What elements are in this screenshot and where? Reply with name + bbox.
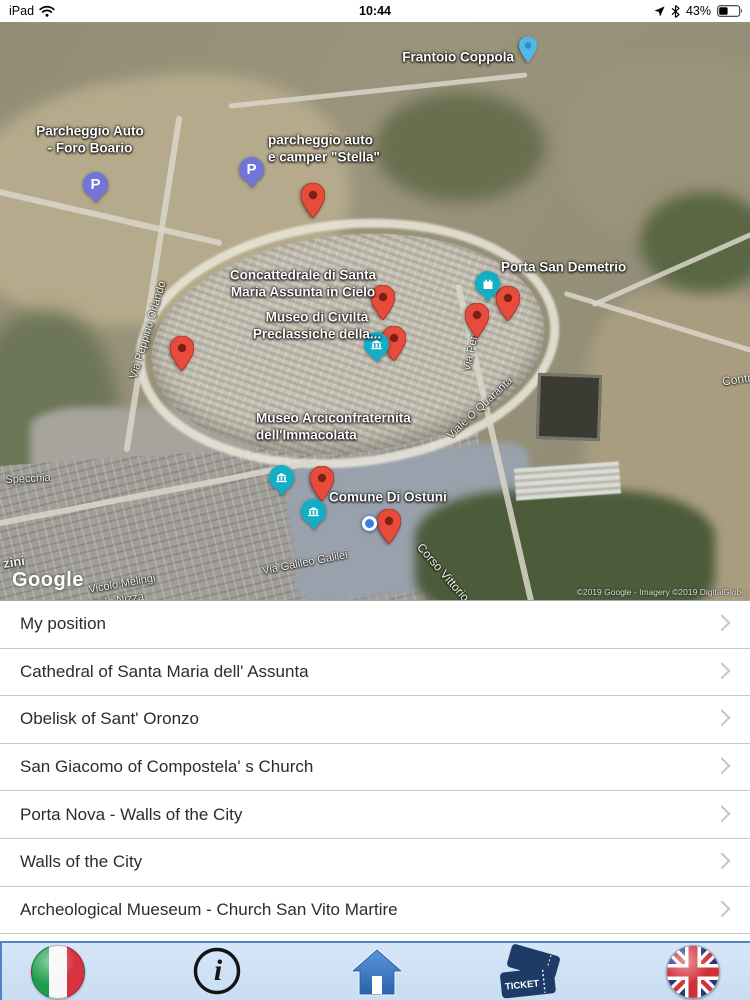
svg-text:i: i: [214, 954, 223, 987]
poi-label: Frantoio Coppola: [402, 48, 514, 65]
poi-label: Comune Di Ostuni: [329, 488, 447, 505]
terrain-field: [560, 52, 750, 242]
terrain-trees: [375, 92, 545, 202]
map-pin-parking-icon[interactable]: P: [83, 172, 108, 203]
info-icon: i: [192, 946, 242, 996]
ticket-icon: TICKET: [497, 944, 563, 1000]
map-pin-red[interactable]: [465, 303, 489, 343]
english-language-button[interactable]: [666, 945, 720, 999]
chevron-right-icon: [714, 662, 731, 679]
bluetooth-icon: [671, 5, 680, 18]
map-attribution: ©2019 Google - Imagery ©2019 DigitalGlob…: [577, 587, 746, 597]
list-item-label: My position: [20, 614, 106, 634]
map[interactable]: Via Peppino Orlando Via Petr Viale O Qua…: [0, 22, 750, 600]
list-item-label: San Giacomo of Compostela' s Church: [20, 757, 313, 777]
list-item-label: Walls of the City: [20, 852, 142, 872]
street-label: Vicolo Melingi: [88, 572, 157, 596]
list-item-porta-nova[interactable]: Porta Nova - Walls of the City: [0, 791, 750, 839]
status-bar: iPad 10:44 43%: [0, 0, 750, 22]
map-pin-castle-icon[interactable]: [475, 271, 500, 302]
list-item-label: Archeological Mueseum - Church San Vito …: [20, 900, 398, 920]
battery-icon: [717, 5, 743, 17]
map-pin-red[interactable]: [377, 509, 401, 549]
info-button[interactable]: i: [192, 946, 242, 1000]
terrain-trees: [640, 192, 750, 292]
street-label: Corso Vittorio Emanuele: [414, 540, 510, 600]
chevron-right-icon: [714, 853, 731, 870]
terrain-sheds: [514, 461, 621, 500]
terrain-trees: [0, 312, 120, 562]
battery-percent: 43%: [686, 4, 711, 18]
road: [564, 291, 750, 354]
poi-label: Museo di Civiltà Preclassiche della...: [253, 309, 381, 344]
street-label: Contra: [721, 370, 750, 389]
ticket-button[interactable]: TICKET: [497, 944, 563, 1000]
list-item-cathedral[interactable]: Cathedral of Santa Maria dell' Assunta: [0, 649, 750, 697]
list-item-label: Obelisk of Sant' Oronzo: [20, 709, 199, 729]
app-screen: iPad 10:44 43%: [0, 0, 750, 1000]
terrain-building: [536, 373, 602, 441]
list-item-label: Porta Nova - Walls of the City: [20, 805, 242, 825]
bottom-toolbar: i: [0, 941, 750, 1000]
terrain-field: [585, 292, 750, 600]
street-label: Viale O Quaranta: [445, 375, 515, 442]
user-location-dot: [362, 516, 377, 531]
street-label: Via Peppino Orlando: [127, 280, 168, 380]
chevron-right-icon: [714, 805, 731, 822]
old-town: [141, 215, 556, 473]
poi-list: My position Cathedral of Santa Maria del…: [0, 600, 750, 934]
map-pin-museum-icon[interactable]: [269, 465, 294, 496]
poi-label: Concattedrale di Santa Maria Assunta in …: [230, 267, 376, 302]
list-item-walls[interactable]: Walls of the City: [0, 839, 750, 887]
map-pin-parking-icon[interactable]: P: [239, 157, 264, 188]
list-item-san-giacomo[interactable]: San Giacomo of Compostela' s Church: [0, 744, 750, 792]
italian-flag-icon: [31, 945, 85, 999]
uk-flag-icon: [666, 945, 720, 999]
road: [123, 116, 182, 453]
google-logo: Google: [12, 569, 84, 592]
road: [229, 72, 528, 108]
street-label: Via Galileo Galilei: [261, 549, 348, 577]
terrain-green-field: [415, 490, 715, 600]
clock: 10:44: [0, 0, 750, 22]
map-pin-red[interactable]: [301, 183, 325, 223]
list-item-my-position[interactable]: My position: [0, 601, 750, 649]
map-pin-red[interactable]: [170, 336, 194, 376]
italian-language-button[interactable]: [31, 945, 85, 999]
location-arrow-icon: [654, 6, 665, 17]
home-icon: [349, 946, 405, 998]
chevron-right-icon: [714, 710, 731, 727]
street-label: Vicolo Nizza: [83, 591, 144, 600]
map-pin-red[interactable]: [371, 285, 395, 325]
list-item-obelisk[interactable]: Obelisk of Sant' Oronzo: [0, 696, 750, 744]
map-pin-townhall-icon[interactable]: [301, 499, 326, 530]
terrain-city: [30, 407, 310, 507]
chevron-right-icon: [714, 615, 731, 632]
map-pin-poi[interactable]: [519, 36, 537, 68]
road: [0, 188, 223, 247]
list-item-archeological-museum[interactable]: Archeological Mueseum - Church San Vito …: [0, 887, 750, 935]
map-pin-museum-icon[interactable]: [364, 332, 389, 363]
home-button[interactable]: [349, 946, 405, 1000]
road: [592, 232, 750, 308]
poi-label: Museo Arciconfraternita dell'Immacolata: [256, 410, 411, 445]
poi-label: parcheggio auto e camper "Stella": [268, 132, 380, 167]
chevron-right-icon: [714, 757, 731, 774]
list-item-label: Cathedral of Santa Maria dell' Assunta: [20, 662, 309, 682]
poi-label: Parcheggio Auto - Foro Boario: [36, 123, 144, 158]
chevron-right-icon: [714, 900, 731, 917]
poi-label: Porta San Demetrio: [501, 258, 626, 275]
street-label: Specchia: [5, 472, 51, 486]
